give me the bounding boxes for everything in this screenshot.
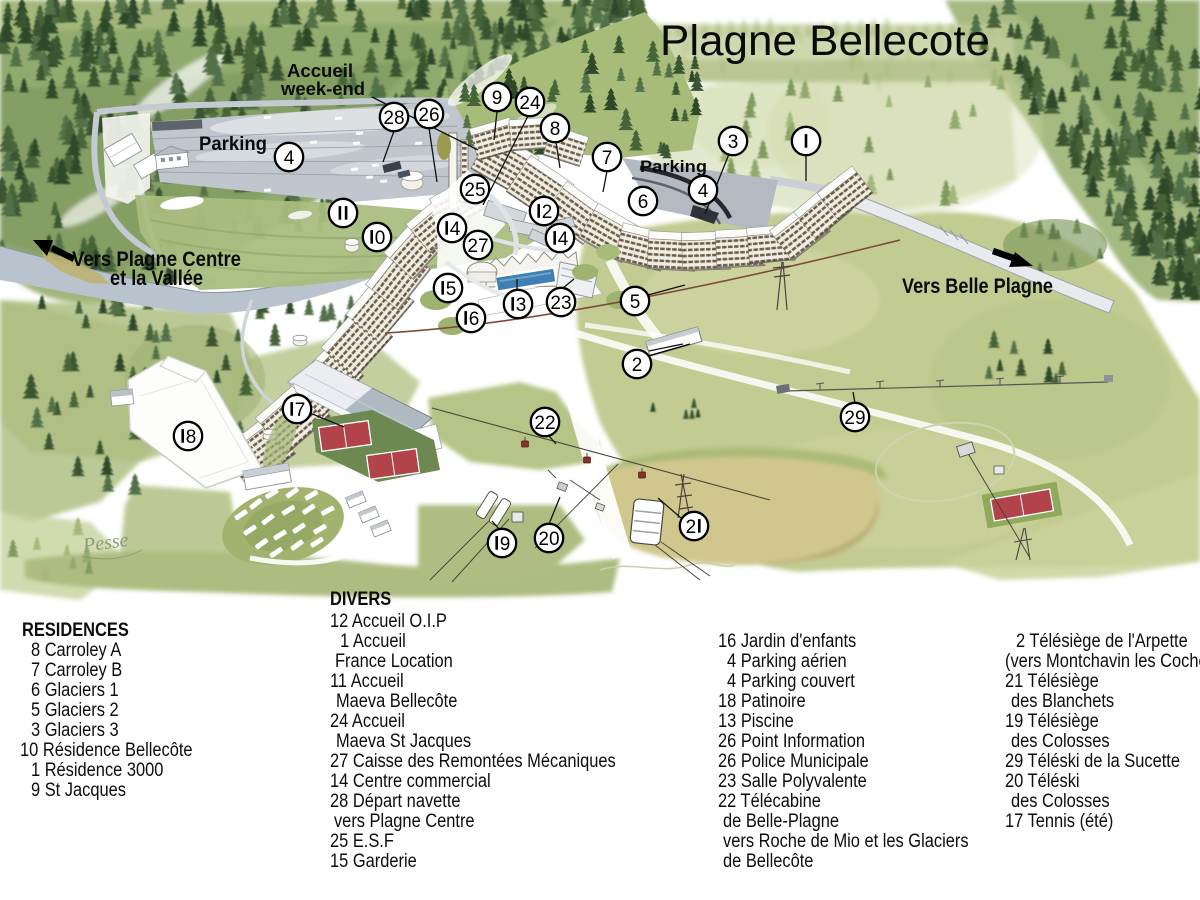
svg-text:de Bellecôte: de Bellecôte — [723, 850, 814, 871]
svg-text:2: 2 — [632, 355, 643, 376]
svg-text:Parking: Parking — [640, 157, 707, 176]
svg-text:vers Roche de Mio et les Glaci: vers Roche de Mio et les Glaciers — [723, 830, 969, 851]
svg-text:2: 2 — [383, 108, 394, 129]
svg-text:7: 7 — [602, 148, 613, 169]
svg-text:2: 2 — [844, 408, 855, 429]
svg-text:8: 8 — [550, 119, 561, 140]
svg-text:3: 3 — [516, 295, 527, 316]
svg-text:9: 9 — [855, 408, 866, 429]
svg-text:et la Vallée: et la Vallée — [110, 267, 203, 290]
svg-text:24 Accueil: 24 Accueil — [330, 710, 405, 731]
svg-text:11 Accueil: 11 Accueil — [330, 670, 404, 691]
svg-text:6: 6 — [638, 192, 649, 213]
svg-text:20 Téléski: 20 Téléski — [1005, 770, 1080, 791]
svg-text:26 Point Information: 26 Point Information — [718, 730, 865, 751]
svg-text:2: 2 — [550, 293, 561, 314]
svg-text:14 Centre commercial: 14 Centre commercial — [330, 770, 491, 791]
svg-text:9: 9 — [492, 88, 503, 109]
svg-text:Plagne Bellecote: Plagne Bellecote — [660, 17, 990, 65]
svg-text:4: 4 — [530, 93, 541, 114]
svg-text:2: 2 — [538, 529, 549, 550]
svg-text:4 Parking couvert: 4 Parking couvert — [727, 670, 855, 691]
svg-text:7: 7 — [295, 400, 306, 421]
svg-text:29 Téléski de la Sucette: 29 Téléski de la Sucette — [1005, 750, 1180, 771]
svg-text:vers Plagne Centre: vers Plagne Centre — [334, 810, 475, 831]
svg-text:2: 2 — [542, 202, 553, 223]
svg-text:4: 4 — [450, 219, 461, 240]
svg-text:1 Résidence 3000: 1 Résidence 3000 — [31, 759, 164, 780]
svg-text:7: 7 — [478, 236, 489, 257]
svg-text:2: 2 — [418, 105, 429, 126]
svg-text:DIVERS: DIVERS — [330, 588, 391, 609]
svg-text:5 Glaciers 2: 5 Glaciers 2 — [31, 699, 119, 720]
svg-text:2: 2 — [519, 93, 530, 114]
svg-text:1 Accueil: 1 Accueil — [340, 630, 406, 651]
svg-text:9 St Jacques: 9 St Jacques — [31, 779, 126, 800]
svg-text:des Colosses: des Colosses — [1011, 730, 1110, 751]
svg-text:Maeva Bellecôte: Maeva Bellecôte — [336, 690, 458, 711]
svg-text:2: 2 — [464, 180, 475, 201]
svg-text:10 Résidence Bellecôte: 10 Résidence Bellecôte — [20, 739, 193, 760]
svg-text:25 E.S.F: 25 E.S.F — [330, 830, 394, 851]
svg-text:7 Carroley B: 7 Carroley B — [31, 659, 122, 680]
svg-text:28 Départ navette: 28 Départ navette — [330, 790, 461, 811]
svg-text:8: 8 — [394, 108, 405, 129]
svg-text:2: 2 — [467, 236, 478, 257]
svg-text:9: 9 — [500, 534, 511, 555]
svg-text:19 Télésiège: 19 Télésiège — [1005, 710, 1099, 731]
svg-text:8 Carroley A: 8 Carroley A — [31, 639, 122, 660]
svg-text:4: 4 — [558, 229, 569, 250]
svg-text:22 Télécabine: 22 Télécabine — [718, 790, 821, 811]
svg-text:18 Patinoire: 18 Patinoire — [718, 690, 806, 711]
svg-text:26 Police Municipale: 26 Police Municipale — [718, 750, 869, 771]
svg-text:Parking: Parking — [199, 134, 267, 155]
svg-text:(vers Montchavin les Coches): (vers Montchavin les Coches) — [1005, 650, 1200, 671]
svg-text:16 Jardin d'enfants: 16 Jardin d'enfants — [718, 630, 856, 651]
svg-text:des Blanchets: des Blanchets — [1011, 690, 1114, 711]
svg-text:3: 3 — [728, 132, 739, 153]
svg-text:12 Accueil O.I.P: 12 Accueil O.I.P — [330, 610, 447, 631]
svg-text:4: 4 — [698, 181, 709, 202]
svg-text:RESIDENCES: RESIDENCES — [22, 619, 129, 640]
svg-text:21 Télésiège: 21 Télésiège — [1005, 670, 1099, 691]
svg-text:5: 5 — [630, 292, 641, 313]
svg-text:3 Glaciers 3: 3 Glaciers 3 — [31, 719, 119, 740]
svg-text:6 Glaciers 1: 6 Glaciers 1 — [31, 679, 119, 700]
svg-text:5: 5 — [475, 180, 486, 201]
svg-text:des Colosses: des Colosses — [1011, 790, 1110, 811]
svg-text:27 Caisse des Remontées Mécani: 27 Caisse des Remontées Mécaniques — [330, 750, 616, 771]
svg-text:23 Salle Polyvalente: 23 Salle Polyvalente — [718, 770, 867, 791]
svg-text:2: 2 — [534, 413, 545, 434]
svg-text:3: 3 — [561, 293, 572, 314]
svg-text:13 Piscine: 13 Piscine — [718, 710, 794, 731]
svg-text:week-end: week-end — [280, 79, 365, 99]
svg-text:2: 2 — [545, 413, 556, 434]
svg-text:15 Garderie: 15 Garderie — [330, 850, 417, 871]
svg-text:Accueil: Accueil — [287, 61, 353, 81]
svg-text:8: 8 — [186, 427, 197, 448]
svg-text:5: 5 — [446, 279, 457, 300]
svg-text:2: 2 — [686, 517, 697, 538]
svg-text:4 Parking aérien: 4 Parking aérien — [727, 650, 847, 671]
svg-text:Vers Belle Plagne: Vers Belle Plagne — [902, 275, 1053, 298]
svg-text:0: 0 — [375, 228, 386, 249]
svg-text:4: 4 — [284, 148, 295, 169]
svg-text:6: 6 — [469, 309, 480, 330]
svg-text:de Belle-Plagne: de Belle-Plagne — [723, 810, 839, 831]
svg-text:0: 0 — [549, 529, 560, 550]
svg-text:17 Tennis (été): 17 Tennis (été) — [1005, 810, 1113, 831]
svg-text:Maeva St Jacques: Maeva St Jacques — [336, 730, 471, 751]
svg-text:France Location: France Location — [335, 650, 453, 671]
svg-text:6: 6 — [429, 105, 440, 126]
svg-text:2 Télésiège de l'Arpette: 2 Télésiège de l'Arpette — [1016, 630, 1188, 651]
